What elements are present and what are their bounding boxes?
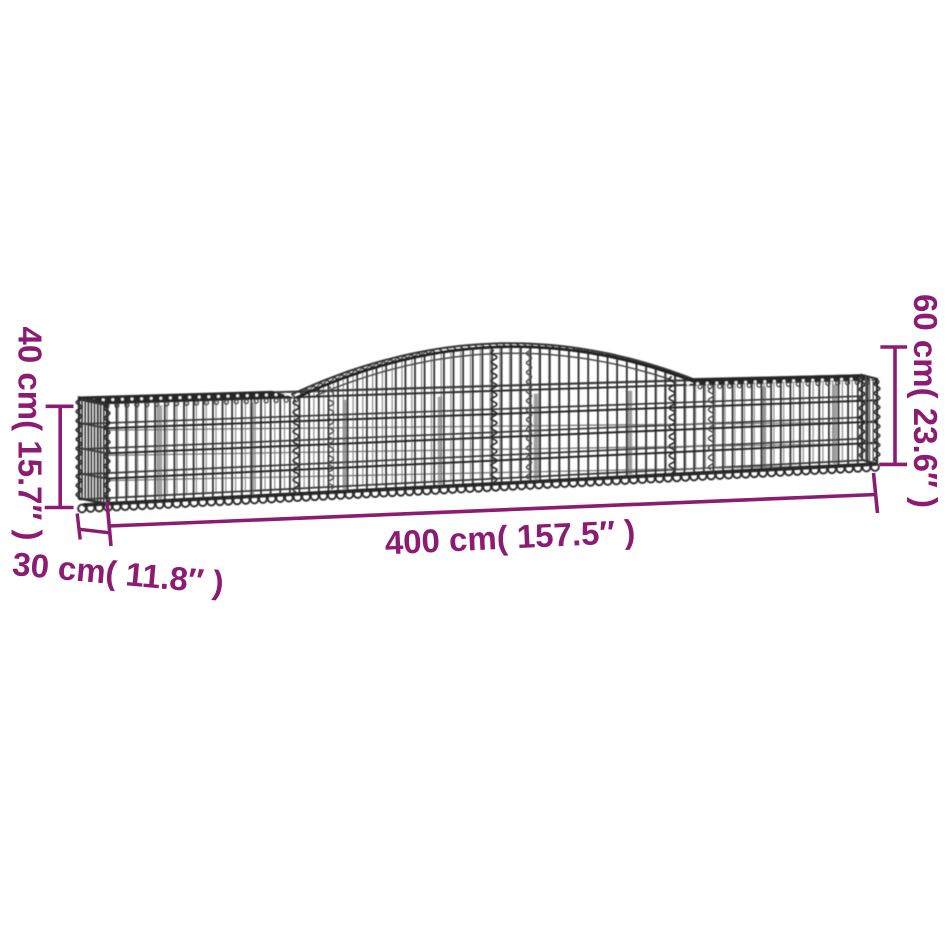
svg-text:60 cm( 23.6″ ): 60 cm( 23.6″ ) [907, 294, 944, 508]
svg-text:400 cm( 157.5″ ): 400 cm( 157.5″ ) [384, 513, 636, 562]
svg-text:30 cm( 11.8″ ): 30 cm( 11.8″ ) [11, 545, 226, 601]
svg-text:40 cm( 15.7″ ): 40 cm( 15.7″ ) [12, 327, 49, 541]
